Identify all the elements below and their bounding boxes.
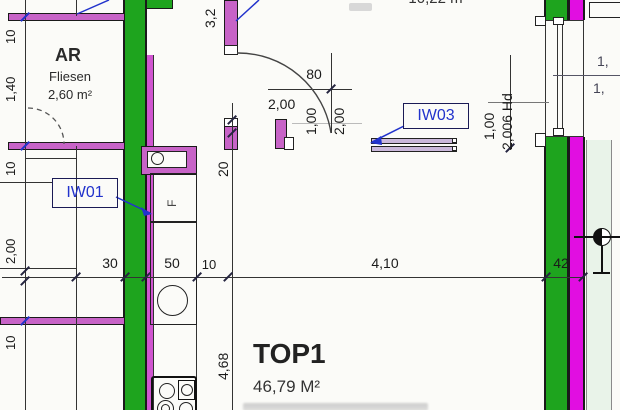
window-glazing-cap bbox=[553, 17, 564, 25]
window-frame bbox=[545, 20, 546, 137]
burner-icon bbox=[161, 404, 170, 410]
wall-edge bbox=[123, 0, 125, 410]
dim-left-2: 10 bbox=[4, 152, 17, 176]
wall-stub-top bbox=[147, 0, 173, 9]
window-jamb-cap bbox=[535, 16, 546, 26]
sink-basin-icon bbox=[157, 285, 188, 316]
dim-v32: 3,2 bbox=[203, 0, 217, 28]
parapet-corner bbox=[589, 2, 620, 18]
fixture-f-label: F bbox=[166, 189, 178, 207]
dim-v20: 20 bbox=[216, 145, 230, 177]
balcony-strip bbox=[586, 140, 612, 410]
wall-edge bbox=[583, 0, 585, 20]
extension-line bbox=[0, 268, 76, 269]
window-jamb-cap bbox=[535, 133, 546, 147]
room-ar-finish: Fliesen bbox=[40, 70, 100, 83]
dim-door-200v: 2,00 bbox=[332, 95, 346, 135]
wall-right-magenta-upper bbox=[570, 0, 583, 20]
pipe-icon bbox=[151, 152, 164, 165]
dim-bottom-1: 50 bbox=[156, 256, 188, 270]
wall-tag-iw03-label: IW03 bbox=[417, 107, 454, 125]
room-ar-name: AR bbox=[40, 46, 96, 64]
room-top1-area: 46,79 M² bbox=[253, 378, 320, 395]
dim-line-door80 bbox=[268, 89, 352, 90]
iw03-wall-element bbox=[371, 138, 457, 144]
door-jamb-cap bbox=[284, 137, 294, 150]
window-glazing-cap bbox=[553, 128, 564, 136]
burner-icon bbox=[159, 383, 175, 399]
dim-right-200hd: 2,006 Hd bbox=[500, 50, 514, 150]
extension-line bbox=[76, 0, 77, 16]
dim-line-right-door bbox=[488, 102, 549, 103]
room-top1-name: TOP1 bbox=[253, 340, 326, 368]
wall-vertical-main bbox=[125, 0, 146, 410]
floor-plan: F IW01 bbox=[0, 0, 620, 410]
dim-bottom-3: 4,10 bbox=[365, 256, 405, 270]
dim-line-vertical bbox=[232, 103, 233, 410]
extension-line bbox=[0, 182, 52, 183]
dim-door-80: 80 bbox=[297, 67, 331, 81]
dim-bottom-0: 30 bbox=[94, 256, 126, 270]
level-marker-foot bbox=[593, 272, 610, 274]
extension-line bbox=[25, 158, 76, 159]
cutoff-element bbox=[349, 3, 372, 11]
wall-tag-iw01-label: IW01 bbox=[66, 184, 103, 202]
wall-tag-iw01: IW01 bbox=[52, 178, 118, 208]
window-glazing bbox=[557, 22, 558, 135]
dim-chain-bottom bbox=[2, 277, 583, 278]
window-frame bbox=[545, 20, 584, 21]
dim-line-window bbox=[553, 75, 620, 76]
dim-door-200: 2,00 bbox=[268, 97, 295, 111]
iw03-wall-element bbox=[371, 146, 457, 152]
burner-icon bbox=[179, 402, 193, 410]
dim-window-upper: 1, bbox=[597, 54, 609, 68]
iw03-end-cap bbox=[452, 146, 457, 151]
level-marker-line bbox=[574, 236, 620, 238]
room-ar-area: 2,60 m² bbox=[38, 88, 102, 101]
leader-line bbox=[236, 0, 259, 21]
window-frame bbox=[545, 136, 584, 137]
door-jamb bbox=[224, 0, 238, 47]
window-frame bbox=[583, 20, 584, 137]
level-marker-stem bbox=[601, 246, 603, 274]
dim-right-100: 1,00 bbox=[482, 92, 496, 140]
wall-tag-iw03: IW03 bbox=[403, 103, 469, 129]
dim-bottom-4: 42 bbox=[545, 256, 577, 270]
window-glazing bbox=[562, 22, 563, 135]
dim-v468: 4,68 bbox=[216, 330, 230, 380]
cutoff-text-blur bbox=[243, 403, 428, 410]
dim-bottom-2: 10 bbox=[196, 258, 222, 271]
iw03-end-cap bbox=[452, 138, 457, 143]
wall-horizontal-low bbox=[0, 317, 125, 325]
dim-left-4: 10 bbox=[4, 326, 17, 350]
leader-line bbox=[77, 0, 109, 14]
wall-right-magenta-lower bbox=[570, 137, 583, 410]
dim-left-1: 1,40 bbox=[4, 60, 17, 102]
room-upper-area: 10,22 m² bbox=[393, 0, 483, 6]
wall-edge bbox=[544, 137, 546, 410]
dim-left-0: 10 bbox=[4, 22, 17, 44]
door-swing-arc-dashed bbox=[28, 108, 64, 144]
dim-door-100v: 1,00 bbox=[304, 95, 318, 135]
dim-chain-left bbox=[25, 0, 26, 410]
dim-left-3: 2,00 bbox=[4, 224, 17, 264]
door-jamb-cap bbox=[224, 45, 238, 55]
burner-icon bbox=[181, 384, 193, 396]
dim-window-lower: 1, bbox=[593, 81, 605, 95]
